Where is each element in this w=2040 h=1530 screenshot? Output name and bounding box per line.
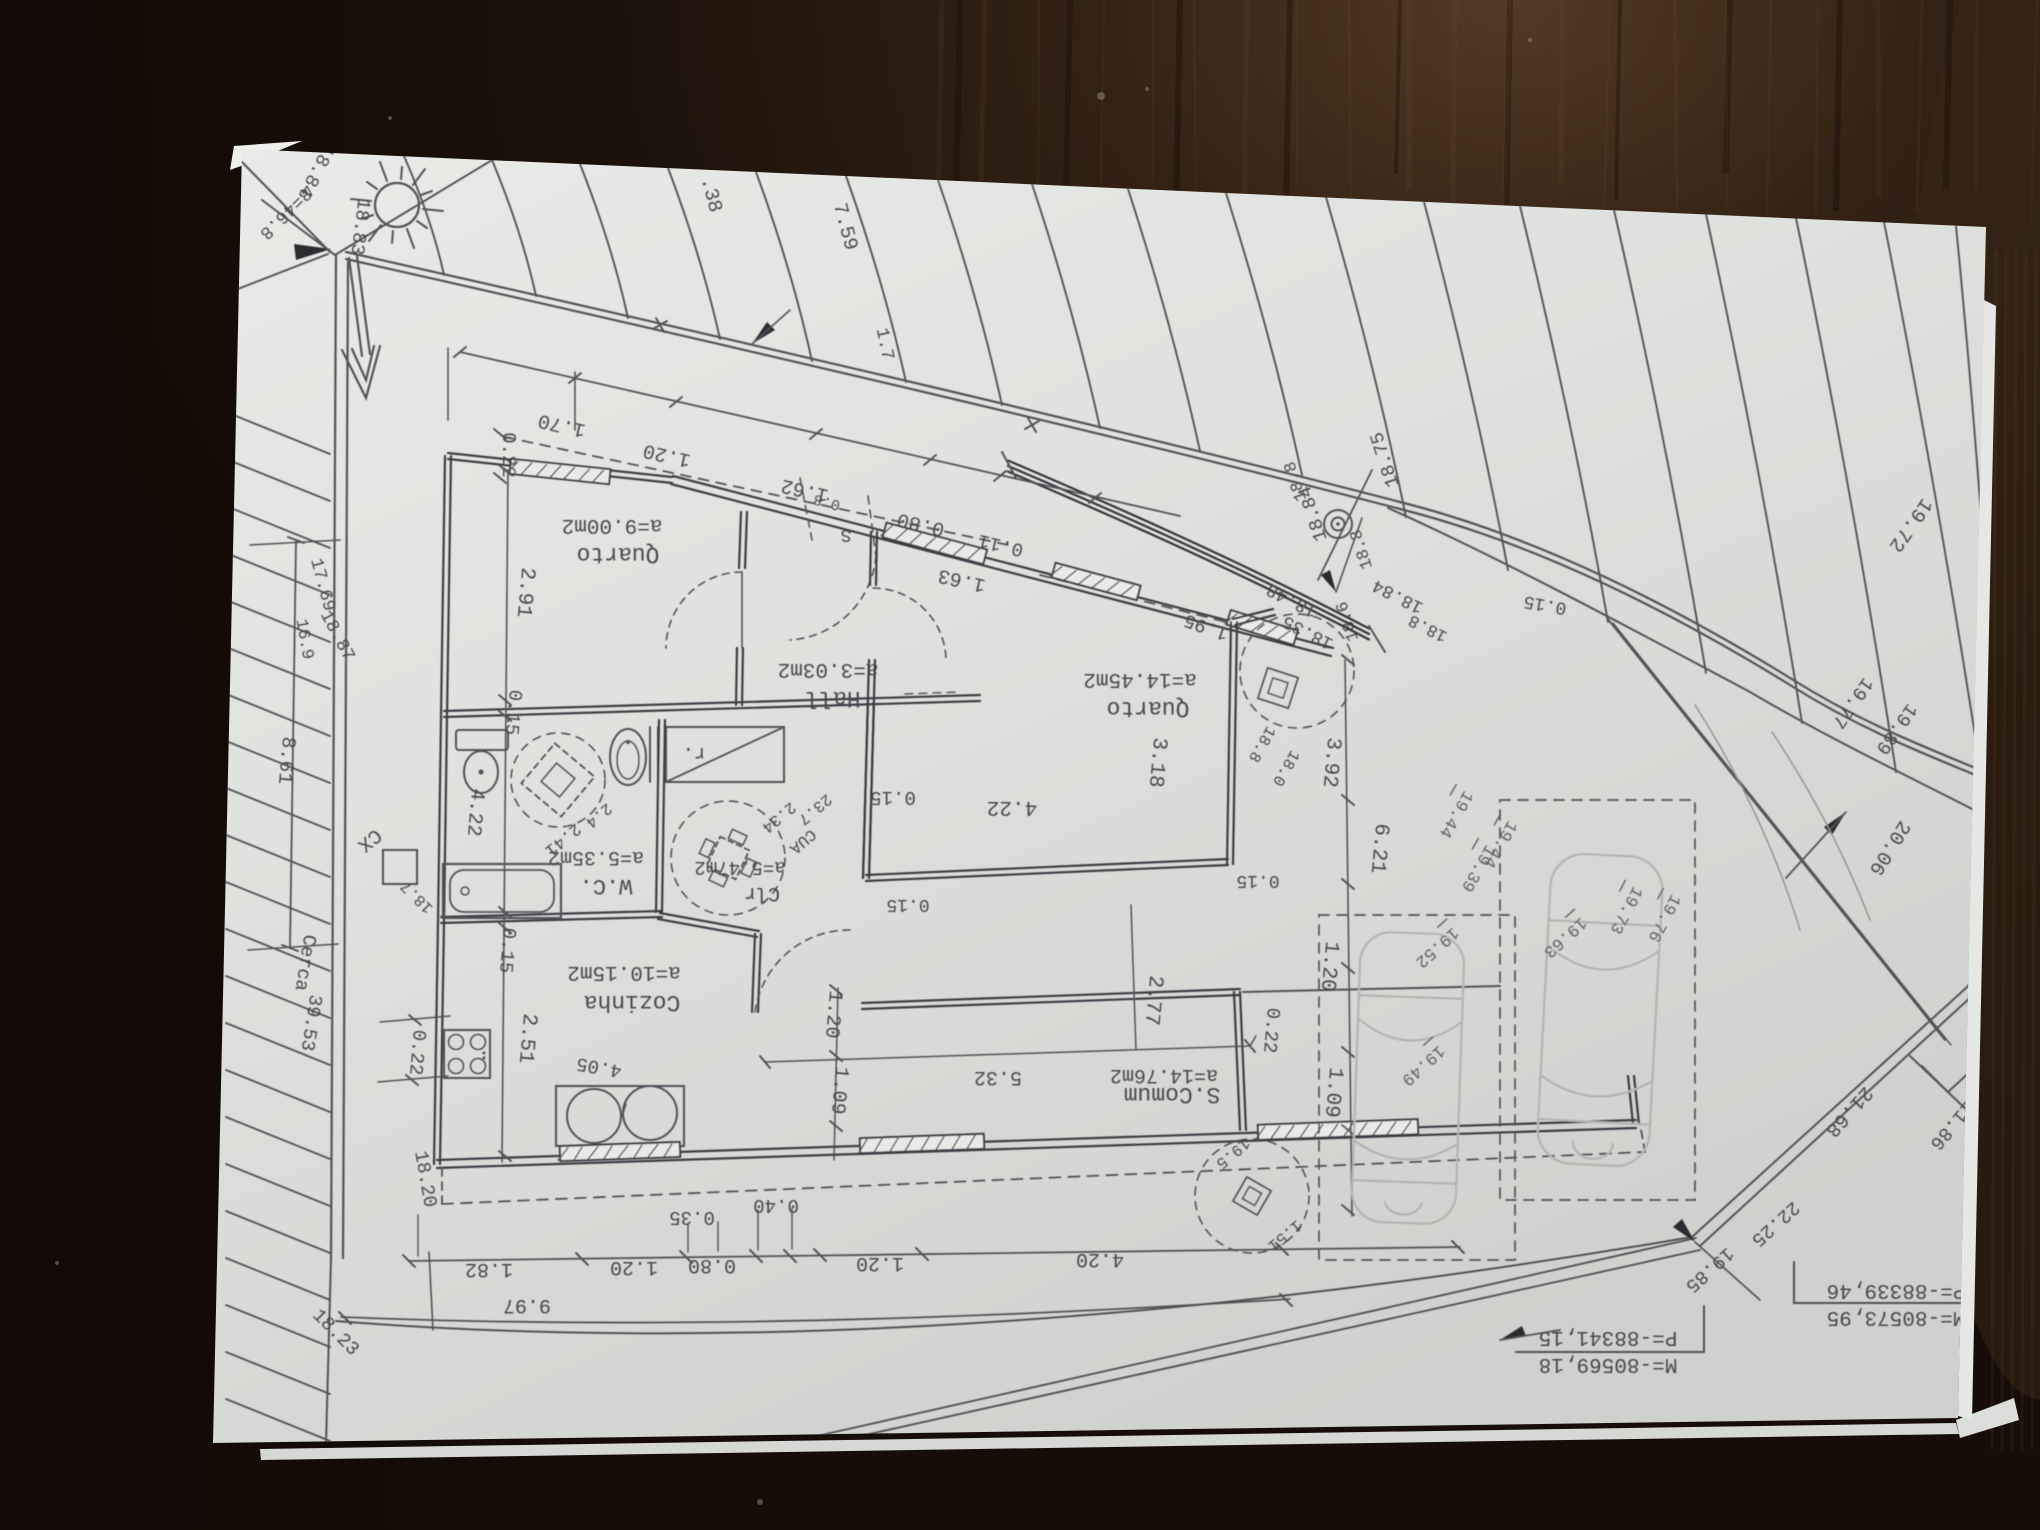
svg-text:6.21: 6.21 <box>1365 822 1392 874</box>
svg-text:4.22: 4.22 <box>987 795 1037 818</box>
svg-text:5.32: 5.32 <box>974 1065 1022 1088</box>
svg-text:1.20: 1.20 <box>610 1255 658 1278</box>
svg-text:1.20: 1.20 <box>819 989 846 1039</box>
svg-text:0.15: 0.15 <box>870 786 916 808</box>
svg-text:4.20: 4.20 <box>1076 1247 1124 1270</box>
svg-text:0.22: 0.22 <box>404 1029 430 1076</box>
svg-text:P=-88339,46: P=-88339,46 <box>1827 1278 1966 1301</box>
svg-text:Clr: Clr <box>744 881 780 904</box>
svg-text:0.15: 0.15 <box>494 927 520 974</box>
svg-text:a=14.76m2: a=14.76m2 <box>1110 1063 1218 1086</box>
svg-text:a=5.35m2: a=5.35m2 <box>548 845 644 868</box>
svg-text:1.82: 1.82 <box>465 1257 513 1280</box>
svg-text:8.61: 8.61 <box>272 735 299 785</box>
svg-text:0.15: 0.15 <box>886 894 929 914</box>
svg-text:Cozinha: Cozinha <box>583 989 680 1015</box>
svg-text:W.C.: W.C. <box>580 873 633 898</box>
svg-text:4.22: 4.22 <box>461 787 488 837</box>
svg-text:M=-80569,18: M=-80569,18 <box>1539 1352 1678 1375</box>
svg-text:a=10.15m2: a=10.15m2 <box>567 960 680 983</box>
svg-text:3.18: 3.18 <box>1143 736 1170 788</box>
svg-text:1.09: 1.09 <box>825 1065 852 1115</box>
svg-text:a=3.03m2: a=3.03m2 <box>778 657 879 680</box>
svg-text:Hall: Hall <box>805 685 860 711</box>
svg-text:1.09: 1.09 <box>1319 1066 1346 1118</box>
svg-text:0.35: 0.35 <box>669 1206 715 1228</box>
svg-text:Quarto: Quarto <box>1107 695 1190 721</box>
svg-text:2.91: 2.91 <box>511 566 538 618</box>
svg-text:2.77: 2.77 <box>1139 974 1166 1026</box>
svg-text:0.22: 0.22 <box>1258 1007 1284 1054</box>
svg-text:1.20: 1.20 <box>856 1251 904 1274</box>
svg-text:a=9.00m2: a=9.00m2 <box>562 513 663 536</box>
svg-text:3.92: 3.92 <box>1317 736 1344 788</box>
svg-text:a=5.47m2: a=5.47m2 <box>694 856 785 878</box>
svg-text:0.15: 0.15 <box>1236 870 1279 890</box>
svg-text:9.97: 9.97 <box>503 1293 551 1316</box>
svg-text:a=14.45m2: a=14.45m2 <box>1083 667 1196 690</box>
svg-text:P=-88341,15: P=-88341,15 <box>1539 1325 1678 1348</box>
svg-text:2.51: 2.51 <box>513 1012 540 1064</box>
svg-text:r.: r. <box>683 742 706 764</box>
svg-text:0.80: 0.80 <box>688 1253 736 1276</box>
svg-text:Quarto: Quarto <box>577 541 660 567</box>
svg-text:0.15: 0.15 <box>500 689 526 736</box>
svg-text:M=-80573,95: M=-80573,95 <box>1827 1305 1966 1328</box>
svg-text:S: S <box>841 524 852 544</box>
